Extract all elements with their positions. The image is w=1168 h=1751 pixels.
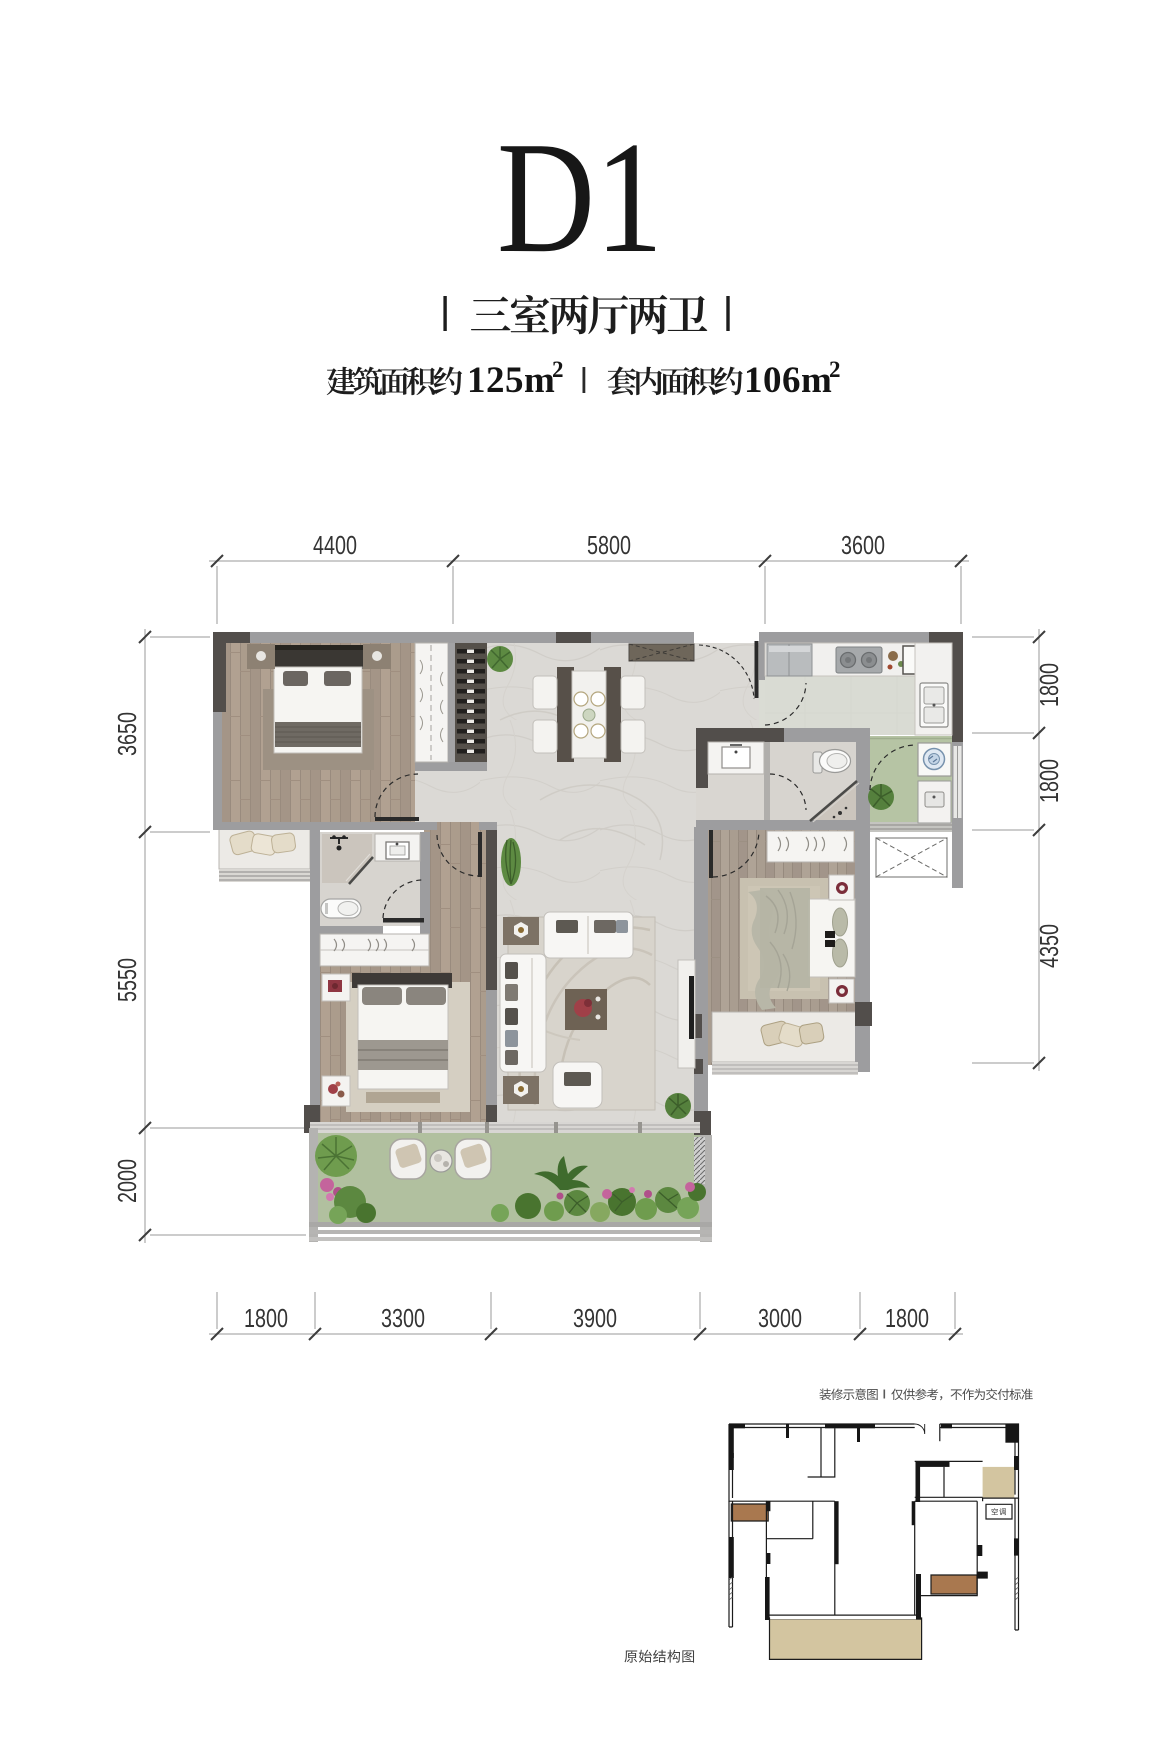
svg-text:125m: 125m [467, 360, 555, 401]
svg-text:1800: 1800 [885, 1303, 929, 1332]
svg-text:5800: 5800 [587, 530, 631, 559]
svg-text:D1: D1 [497, 110, 663, 287]
svg-text:106m: 106m [744, 360, 832, 401]
svg-text:3900: 3900 [573, 1303, 617, 1332]
svg-text:2: 2 [829, 357, 841, 382]
svg-text:4350: 4350 [1034, 924, 1063, 968]
svg-text:1800: 1800 [1034, 663, 1063, 707]
svg-text:5550: 5550 [112, 958, 141, 1002]
svg-text:3000: 3000 [758, 1303, 802, 1332]
svg-text:2: 2 [552, 357, 564, 382]
svg-text:1800: 1800 [244, 1303, 288, 1332]
svg-text:4400: 4400 [313, 530, 357, 559]
svg-text:3600: 3600 [841, 530, 885, 559]
svg-text:3300: 3300 [381, 1303, 425, 1332]
svg-text:3650: 3650 [112, 712, 141, 756]
svg-text:1800: 1800 [1034, 759, 1063, 803]
svg-text:2000: 2000 [112, 1159, 141, 1203]
